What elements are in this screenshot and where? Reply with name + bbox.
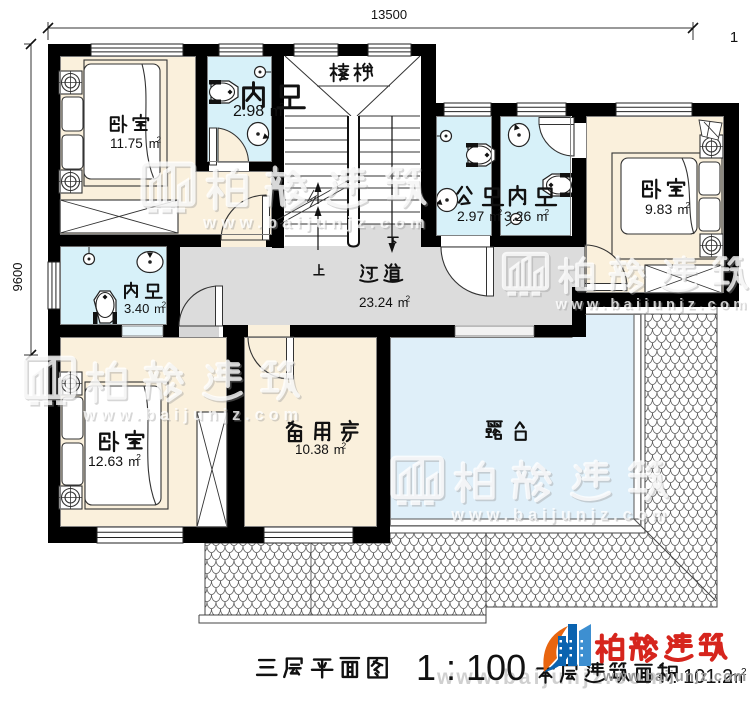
svg-text:2: 2	[136, 452, 141, 462]
svg-text:3.26: 3.26	[504, 208, 531, 224]
svg-text:1: 1	[730, 29, 738, 46]
svg-text:2: 2	[279, 101, 284, 112]
svg-text:www.baijunjz.com: www.baijunjz.com	[82, 406, 303, 424]
svg-text:2: 2	[498, 207, 503, 217]
svg-text:www.baijunjz.com: www.baijunjz.com	[602, 669, 747, 685]
svg-text:11.75: 11.75	[110, 136, 143, 151]
svg-text:2: 2	[545, 207, 550, 217]
svg-text:1 : 100: 1 : 100	[416, 647, 526, 688]
svg-text:10.38: 10.38	[295, 442, 329, 457]
svg-text:2: 2	[686, 200, 691, 210]
svg-text:www.baijunjz.com: www.baijunjz.com	[202, 213, 430, 232]
svg-text:9.83: 9.83	[645, 201, 672, 217]
svg-text:www.baijunjz.com: www.baijunjz.com	[555, 297, 750, 313]
svg-text:3.40: 3.40	[124, 301, 149, 316]
svg-text:www.baijunjz.com: www.baijunjz.com	[450, 506, 671, 524]
svg-text:2: 2	[342, 441, 347, 450]
svg-text:2: 2	[157, 135, 162, 144]
svg-text:13500: 13500	[371, 7, 407, 22]
svg-text:12.63: 12.63	[88, 453, 123, 469]
svg-text:9600: 9600	[10, 263, 25, 292]
svg-text:2: 2	[406, 294, 411, 303]
svg-text:2.97: 2.97	[457, 208, 484, 224]
svg-text:2: 2	[162, 301, 166, 310]
svg-text:23.24: 23.24	[359, 295, 393, 310]
svg-text:2.98: 2.98	[233, 103, 264, 120]
